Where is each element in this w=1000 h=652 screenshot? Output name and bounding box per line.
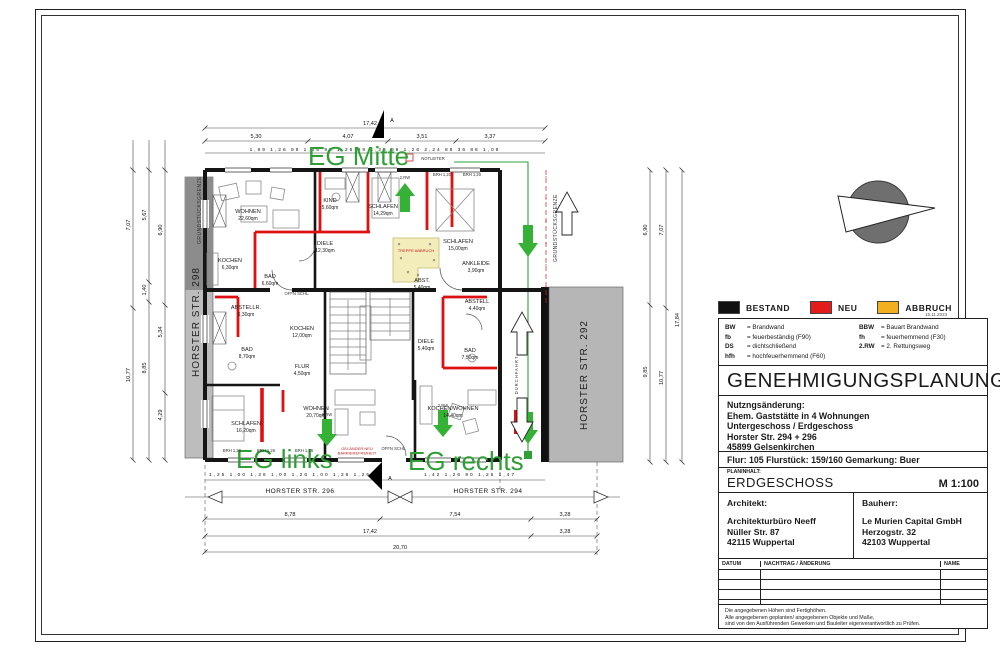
svg-text:BRH 1,20: BRH 1,20 xyxy=(433,172,452,177)
abbr-text: = 2. Rettungsweg xyxy=(881,343,930,350)
svg-text:BAD: BAD xyxy=(464,348,476,354)
abbr-key: fb xyxy=(725,333,747,343)
revision-header: DATUM NACHTRAG / ÄNDERUNG NAME xyxy=(719,559,987,570)
architect-label: Architekt: xyxy=(727,498,853,508)
dim: 3,37 xyxy=(485,134,496,140)
col-datum: DATUM xyxy=(719,561,761,567)
legend-swatch-abbruch xyxy=(877,301,899,314)
legend-label-neu: NEU xyxy=(838,303,857,313)
svg-text:BRH 1,20: BRH 1,20 xyxy=(463,172,482,177)
revision-table: DATUM NACHTRAG / ÄNDERUNG NAME xyxy=(718,558,988,605)
dim: 1,40 xyxy=(142,285,148,296)
svg-text:WOHNEN: WOHNEN xyxy=(303,406,328,412)
svg-text:BAD: BAD xyxy=(264,274,276,280)
dim: 8,85 xyxy=(142,363,148,374)
dim: 10,77 xyxy=(126,368,132,382)
svg-text:BRH 1,26: BRH 1,26 xyxy=(295,448,314,453)
abbreviations-col1: BW= Brandwand fb= feuerbeständig (F90) D… xyxy=(725,323,825,361)
boundary-label-right: GRUNDSTÜCKSGRENZE xyxy=(552,194,559,262)
svg-text:ANKLEIDE: ANKLEIDE xyxy=(462,261,490,267)
street-label-292: HORSTER STR. 292 xyxy=(579,320,590,430)
svg-text:BAD: BAD xyxy=(241,347,253,353)
dim: 17,84 xyxy=(675,313,681,327)
dim: 6,90 xyxy=(643,225,649,236)
usage-line: Horster Str. 294 + 296 xyxy=(727,432,987,443)
client-line: Herzogstr. 32 xyxy=(862,527,987,537)
notes-box: Die angegebenen Höhen sind Fertighöhen. … xyxy=(718,604,988,629)
unit-label-links: EG links xyxy=(236,444,333,474)
plan-content-box: PLANINHALT: ERDGESCHOSS M 1:100 xyxy=(718,467,988,493)
svg-text:12,00qm: 12,00qm xyxy=(292,333,311,339)
legend-label-abbruch: ABBRUCH xyxy=(905,303,951,313)
svg-text:SCHLAFEN: SCHLAFEN xyxy=(368,204,398,210)
note-line: Die angegebenen Höhen sind Fertighöhen. xyxy=(725,608,987,615)
demolition-stair: ××× ××× TREPPE ABBRUCH xyxy=(393,238,439,282)
usage-line: Untergeschoss / Erdgeschoss xyxy=(727,421,987,432)
usage-line: Nutzngsänderung: xyxy=(727,400,987,411)
durchfahrt-label: DURCHFAHRT xyxy=(514,356,519,395)
architect-line: Nüller Str. 87 xyxy=(727,527,853,537)
revision-row xyxy=(719,570,987,580)
parcel-box: Flur: 105 Flurstück: 159/160 Gemarkung: … xyxy=(718,451,988,468)
client-line: Le Murien Capital GmbH xyxy=(862,516,987,526)
svg-text:ABSTELLR.: ABSTELLR. xyxy=(231,305,262,311)
svg-text:ABST.: ABST. xyxy=(414,278,430,284)
svg-text:OFFN SCHL.: OFFN SCHL. xyxy=(285,291,310,296)
note-line: Alle angegebenen geplanten/ angegebenen … xyxy=(725,615,987,622)
col-name: NAME xyxy=(941,561,987,567)
svg-text:FLUR: FLUR xyxy=(295,364,310,370)
plan-title: GENEHMIGUNGSPLANUNG xyxy=(727,369,1000,393)
legend: BESTAND NEU ABBRUCH xyxy=(718,299,988,316)
svg-text:DIELE: DIELE xyxy=(418,339,434,345)
parcel-text: Flur: 105 Flurstück: 159/160 Gemarkung: … xyxy=(727,455,920,465)
abbr-key: DS xyxy=(725,342,747,352)
street-label-294: HORSTER STR. 294 xyxy=(453,488,522,495)
svg-text:22,60qm: 22,60qm xyxy=(238,216,257,222)
dim: 4,29 xyxy=(158,410,164,421)
abbr-key: hfh xyxy=(725,352,747,362)
parties-box: Architekt: Architekturbüro Neeff Nüller … xyxy=(718,492,988,559)
client-line: 42103 Wuppertal xyxy=(862,537,987,547)
abbreviations-col2: BBW= Bauart Brandwand fh= feuerhemmend (… xyxy=(859,323,946,352)
dim: 5,30 xyxy=(251,134,262,140)
svg-text:×: × xyxy=(545,240,548,245)
abbr-text: = dichtschließend xyxy=(747,343,796,350)
client-cell: Bauherr: Le Murien Capital GmbH Herzogst… xyxy=(853,493,987,558)
plan-title-box: GENEHMIGUNGSPLANUNG xyxy=(718,365,988,396)
svg-text:14,40qm: 14,40qm xyxy=(443,413,462,419)
svg-text:4,50qm: 4,50qm xyxy=(294,371,311,377)
abbr-key: BBW xyxy=(859,323,881,333)
svg-text:DIELE: DIELE xyxy=(317,241,333,247)
dim: 17,42 xyxy=(363,529,377,535)
svg-text:×: × xyxy=(545,262,548,267)
floor-plan-drawing: HORSTER STR. 298 HORSTER STR. 292 17,42 … xyxy=(120,60,700,560)
usage-line: Ehem. Gaststätte in 4 Wohnungen xyxy=(727,411,987,422)
col-nachtrag: NACHTRAG / ÄNDERUNG xyxy=(761,561,941,567)
legend-label-bestand: BESTAND xyxy=(746,303,790,313)
dim: 8,78 xyxy=(285,512,296,518)
dim: 9,85 xyxy=(643,367,649,378)
svg-text:SCHLAFEN: SCHLAFEN xyxy=(443,239,473,245)
dim: 7,07 xyxy=(126,220,132,231)
dim-bottom-total: 20,70 xyxy=(393,545,407,551)
legend-swatch-bestand xyxy=(718,301,740,314)
svg-text:6,60qm: 6,60qm xyxy=(262,281,279,287)
abbr-text: = Brandwand xyxy=(747,324,784,331)
architect-line: Architekturbüro Neeff xyxy=(727,516,853,526)
plan-content: ERDGESCHOSS xyxy=(727,475,834,490)
svg-text:KOCHEN/WOHNEN: KOCHEN/WOHNEN xyxy=(428,406,479,412)
svg-text:5,40qm: 5,40qm xyxy=(414,285,431,291)
svg-text:×: × xyxy=(406,270,409,276)
svg-text:A: A xyxy=(388,476,392,482)
svg-text:×: × xyxy=(399,256,402,262)
svg-text:OFFN SCHL.: OFFN SCHL. xyxy=(382,446,407,451)
svg-text:7,50qm: 7,50qm xyxy=(462,355,479,361)
svg-text:5,40qm: 5,40qm xyxy=(418,346,435,352)
svg-text:4,40qm: 4,40qm xyxy=(469,306,486,312)
svg-text:2.RW: 2.RW xyxy=(400,175,410,180)
architect-cell: Architekt: Architekturbüro Neeff Nüller … xyxy=(719,493,853,558)
svg-text:BRH 1,26: BRH 1,26 xyxy=(257,448,276,453)
floor-plan: HORSTER STR. 298 HORSTER STR. 292 17,42 … xyxy=(120,60,700,560)
svg-text:BRH 1,26: BRH 1,26 xyxy=(223,448,242,453)
street-label-296: HORSTER STR. 296 xyxy=(265,488,334,495)
legend-date: 15.11.2023 xyxy=(925,312,947,317)
svg-text:8,70qm: 8,70qm xyxy=(239,354,256,360)
architect-line: 42115 Wuppertal xyxy=(727,537,853,547)
svg-text:5,60qm: 5,60qm xyxy=(322,205,339,211)
dim: 3,51 xyxy=(417,134,428,140)
unit-label-rechts: EG rechts xyxy=(408,446,524,476)
abbr-text: = feuerhemmend (F30) xyxy=(881,334,946,341)
svg-text:WOHNEN: WOHNEN xyxy=(235,209,260,215)
svg-text:15,00qm: 15,00qm xyxy=(448,246,467,252)
dim: 6,90 xyxy=(158,225,164,236)
svg-text:SCHLAFEN: SCHLAFEN xyxy=(231,421,261,427)
dim: 3,28 xyxy=(560,529,571,535)
svg-text:16,20qm: 16,20qm xyxy=(236,428,255,434)
svg-text:14,29qm: 14,29qm xyxy=(373,211,392,217)
svg-text:KIND: KIND xyxy=(323,198,336,204)
property-boundary: ×× ×× ×× xyxy=(545,170,548,305)
svg-text:6,30qm: 6,30qm xyxy=(222,265,239,271)
abbr-text: = feuerbeständig (F90) xyxy=(747,334,811,341)
svg-text:20,70qm: 20,70qm xyxy=(306,413,325,419)
abbreviations-box: BW= Brandwand fb= feuerbeständig (F90) D… xyxy=(718,318,988,366)
usage-box: Nutzngsänderung: Ehem. Gaststätte in 4 W… xyxy=(718,395,988,452)
svg-text:TREPPE ABBRUCH: TREPPE ABBRUCH xyxy=(398,248,435,253)
dim: 10,77 xyxy=(659,371,665,385)
revision-row xyxy=(719,590,987,600)
abbr-text: = Bauart Brandwand xyxy=(881,324,939,331)
notleiter-label: NOTLEITER xyxy=(421,156,445,161)
svg-text:×: × xyxy=(545,174,548,179)
north-arrow xyxy=(815,178,955,250)
svg-text:BARRIEREFREIHEIT: BARRIEREFREIHEIT xyxy=(338,451,377,456)
abbr-key: 2.RW xyxy=(859,342,881,352)
revision-row xyxy=(719,580,987,590)
dim: 3,28 xyxy=(560,512,571,518)
svg-text:KOCHEN: KOCHEN xyxy=(290,326,314,332)
door-arcs xyxy=(272,245,482,456)
street-label-298: HORSTER STR. 298 xyxy=(191,267,202,377)
svg-text:×: × xyxy=(432,258,435,264)
legend-swatch-neu xyxy=(810,301,832,314)
dim: 7,54 xyxy=(450,512,461,518)
plan-scale: M 1:100 xyxy=(939,478,979,490)
abbr-key: BW xyxy=(725,323,747,333)
dim-top-total: 17,42 xyxy=(363,121,377,127)
svg-text:×: × xyxy=(545,218,548,223)
svg-text:KOCHEN: KOCHEN xyxy=(218,258,242,264)
dim: 5,34 xyxy=(158,327,164,338)
svg-text:3,90qm: 3,90qm xyxy=(468,268,485,274)
svg-text:ABSTELL: ABSTELL xyxy=(465,299,490,305)
staircase xyxy=(330,292,410,374)
svg-text:A: A xyxy=(390,118,394,124)
dim: 4,07 xyxy=(343,134,354,140)
svg-text:×: × xyxy=(545,196,548,201)
client-label: Bauherr: xyxy=(862,498,987,508)
svg-text:12,30qm: 12,30qm xyxy=(315,248,334,254)
dim: 7,07 xyxy=(659,225,665,236)
svg-text:6,30qm: 6,30qm xyxy=(238,312,255,318)
note-line: sind von den Ausführenden Gewerken und B… xyxy=(725,621,987,628)
section-marker-bottom: A xyxy=(368,462,392,490)
abbr-key: fh xyxy=(859,333,881,343)
abbr-text: = hochfeuerhemmend (F60) xyxy=(747,353,825,360)
unit-label-mitte: EG Mitte xyxy=(308,141,409,171)
dim: 5,67 xyxy=(142,210,148,221)
